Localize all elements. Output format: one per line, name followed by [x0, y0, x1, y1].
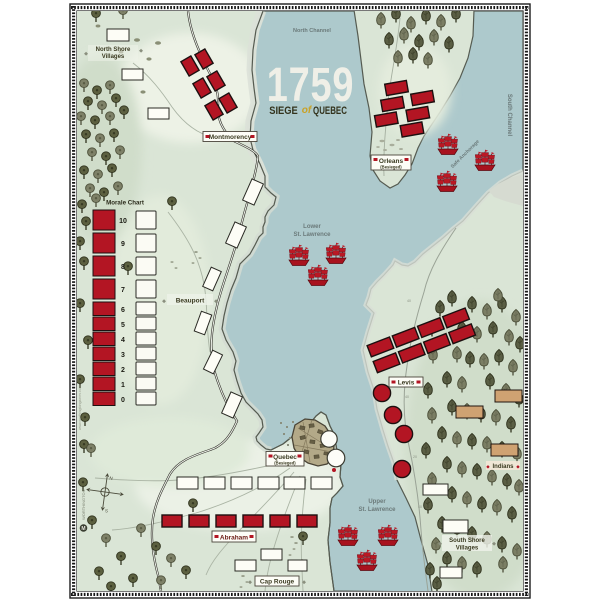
- svg-text:◆: ◆: [214, 299, 218, 305]
- svg-text:St. Lawrence: St. Lawrence: [293, 232, 331, 238]
- svg-text:N: N: [109, 476, 113, 481]
- svg-text:Cap Rouge: Cap Rouge: [260, 579, 295, 586]
- svg-text:North Shore: North Shore: [96, 47, 131, 53]
- svg-text:(Besieged): (Besieged): [274, 461, 296, 466]
- svg-text:◆: ◆: [302, 580, 306, 586]
- svg-text:◆: ◆: [492, 541, 496, 547]
- svg-text:www.worthingtongames.com: www.worthingtongames.com: [78, 385, 82, 430]
- svg-text:North Channel: North Channel: [293, 28, 331, 34]
- svg-text:South Channel: South Channel: [506, 94, 512, 137]
- svg-text:QUEBEC: QUEBEC: [313, 105, 347, 118]
- svg-text:5: 5: [121, 322, 125, 329]
- svg-text:of: of: [302, 105, 313, 116]
- svg-text:20: 20: [413, 455, 417, 459]
- svg-text:◆: ◆: [162, 299, 166, 305]
- svg-text:40: 40: [407, 299, 411, 303]
- svg-text:1: 1: [121, 382, 125, 389]
- svg-text:WORTHINGTON: WORTHINGTON: [81, 489, 86, 520]
- svg-text:◆: ◆: [84, 51, 88, 57]
- svg-text:40: 40: [405, 395, 409, 399]
- svg-text:◆: ◆: [438, 541, 442, 547]
- svg-text:Upper: Upper: [368, 499, 386, 505]
- svg-text:Beauport: Beauport: [176, 298, 205, 305]
- svg-text:SIEGE: SIEGE: [269, 105, 298, 117]
- svg-text:Villages: Villages: [102, 54, 125, 60]
- svg-text:2: 2: [121, 367, 125, 374]
- svg-text:Morale Chart: Morale Chart: [106, 200, 144, 207]
- svg-text:7: 7: [121, 287, 125, 294]
- svg-text:Villages: Villages: [456, 546, 479, 552]
- svg-text:Lower: Lower: [303, 224, 321, 230]
- svg-text:9: 9: [121, 241, 125, 248]
- svg-text:◆: ◆: [248, 580, 252, 586]
- svg-text:40: 40: [418, 505, 422, 509]
- svg-text:10: 10: [119, 218, 127, 225]
- svg-text:0: 0: [121, 397, 125, 404]
- svg-text:4: 4: [121, 337, 125, 344]
- svg-text:M: M: [81, 526, 85, 532]
- svg-text:Levis: Levis: [398, 380, 415, 387]
- svg-text:6: 6: [121, 307, 125, 314]
- svg-text:Indians: Indians: [492, 464, 514, 470]
- svg-text:St. Lawrence: St. Lawrence: [358, 507, 396, 513]
- svg-text:◆: ◆: [516, 464, 520, 469]
- svg-text:8: 8: [121, 264, 125, 271]
- svg-text:◆: ◆: [139, 48, 143, 54]
- svg-text:Montmorency: Montmorency: [209, 134, 252, 141]
- svg-text:3: 3: [121, 352, 125, 359]
- svg-text:Abraham: Abraham: [220, 535, 248, 542]
- svg-text:South Shore: South Shore: [449, 538, 485, 544]
- svg-text:◆: ◆: [486, 464, 490, 469]
- svg-text:(Besieged): (Besieged): [380, 165, 402, 170]
